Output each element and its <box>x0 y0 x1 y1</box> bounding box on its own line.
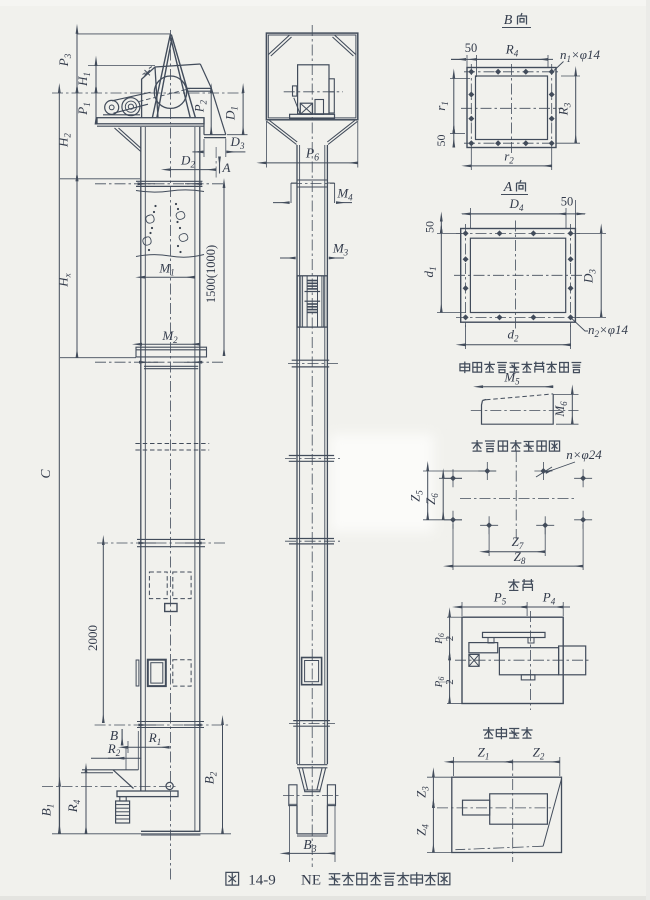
svg-text:n2×φ14: n2×φ14 <box>588 322 628 339</box>
svg-text:50: 50 <box>465 41 478 55</box>
svg-text:1500(1000): 1500(1000) <box>204 245 218 303</box>
svg-text:B: B <box>504 13 513 28</box>
svg-text:n×φ24: n×φ24 <box>566 447 602 462</box>
svg-text:50: 50 <box>423 221 437 233</box>
svg-text:50: 50 <box>561 195 574 209</box>
svg-text:A: A <box>222 160 231 175</box>
svg-text:14-9: 14-9 <box>248 873 276 889</box>
svg-text:C: C <box>38 469 53 479</box>
svg-text:n1×φ14: n1×φ14 <box>560 47 600 64</box>
svg-text:50: 50 <box>434 135 448 147</box>
svg-text:NE: NE <box>301 873 321 889</box>
svg-text:2000: 2000 <box>85 625 100 651</box>
svg-text:A: A <box>503 180 513 195</box>
